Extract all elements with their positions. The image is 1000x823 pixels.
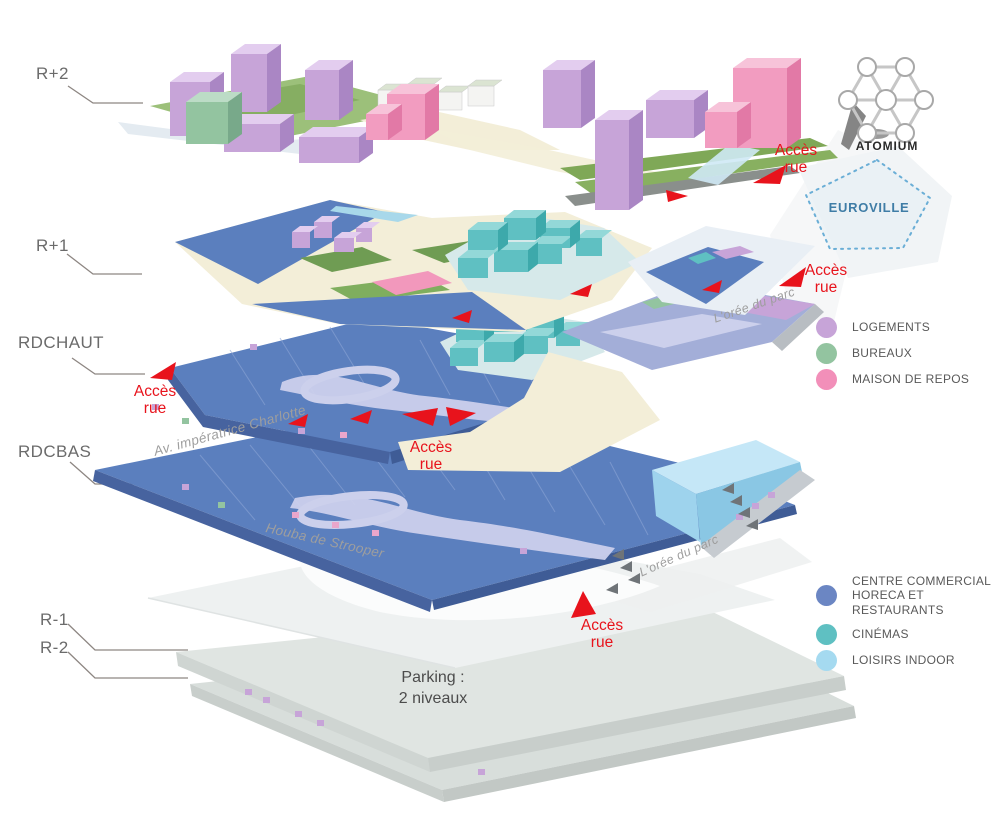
legend-swatch [816,369,837,390]
legend-swatch [816,317,837,338]
legend-swatch [816,650,837,671]
level-label-r-minus-2: R-2 [40,638,69,657]
legend-item-maison-de-repos: MAISON DE REPOS [816,369,969,390]
level-r-plus-2 [118,44,838,210]
leader-line [68,86,143,103]
leader-line [67,254,142,274]
atomium-icon [839,58,933,150]
level-label-rdc-haut: RDCHAUT [18,333,76,352]
legend-swatch [816,624,837,645]
access-rue-label-left: Accèsrue [123,383,187,417]
access-arrow-icon [666,190,688,202]
atomium-label: ATOMIUM [832,139,942,153]
parking-label: Parking :2 niveaux [363,668,503,710]
exploded-axonometric-diagram: R+2 R+1 RDCHAUT RDCBAS R-1 R-2 Av. impér… [0,0,1000,823]
legend-item-logements: LOGEMENTS [816,317,969,338]
level-label-r1: R+1 [36,236,69,255]
access-rue-label-top: Accèsrue [764,142,828,176]
level-label-r-minus-1: R-1 [40,610,69,629]
legend-swatch [816,585,837,606]
leader-line [68,624,188,650]
legend-swatch [816,343,837,364]
euroville-label: EUROVILLE [809,200,929,215]
legend-item-centre-commercial: CENTRE COMMERCIAL HORECA ET RESTAURANTS [816,574,1000,617]
legend-lower: CENTRE COMMERCIAL HORECA ET RESTAURANTS … [816,574,1000,676]
access-rue-label-middle: Accèsrue [399,439,463,473]
legend-item-loisirs-indoor: LOISIRS INDOOR [816,650,1000,671]
access-rue-label-bottom: Accèsrue [570,617,634,651]
leader-line [68,652,188,678]
access-rue-label-right: Accèsrue [794,262,858,296]
leader-line [72,358,145,374]
legend-item-cinemas: CINÉMAS [816,624,1000,645]
legend-upper: LOGEMENTS BUREAUX MAISON DE REPOS [816,317,969,395]
level-label-r2: R+2 [36,64,69,83]
access-arrow-icon [150,362,176,380]
level-label-rdc-bas: RDCBAS [18,442,76,461]
legend-item-bureaux: BUREAUX [816,343,969,364]
